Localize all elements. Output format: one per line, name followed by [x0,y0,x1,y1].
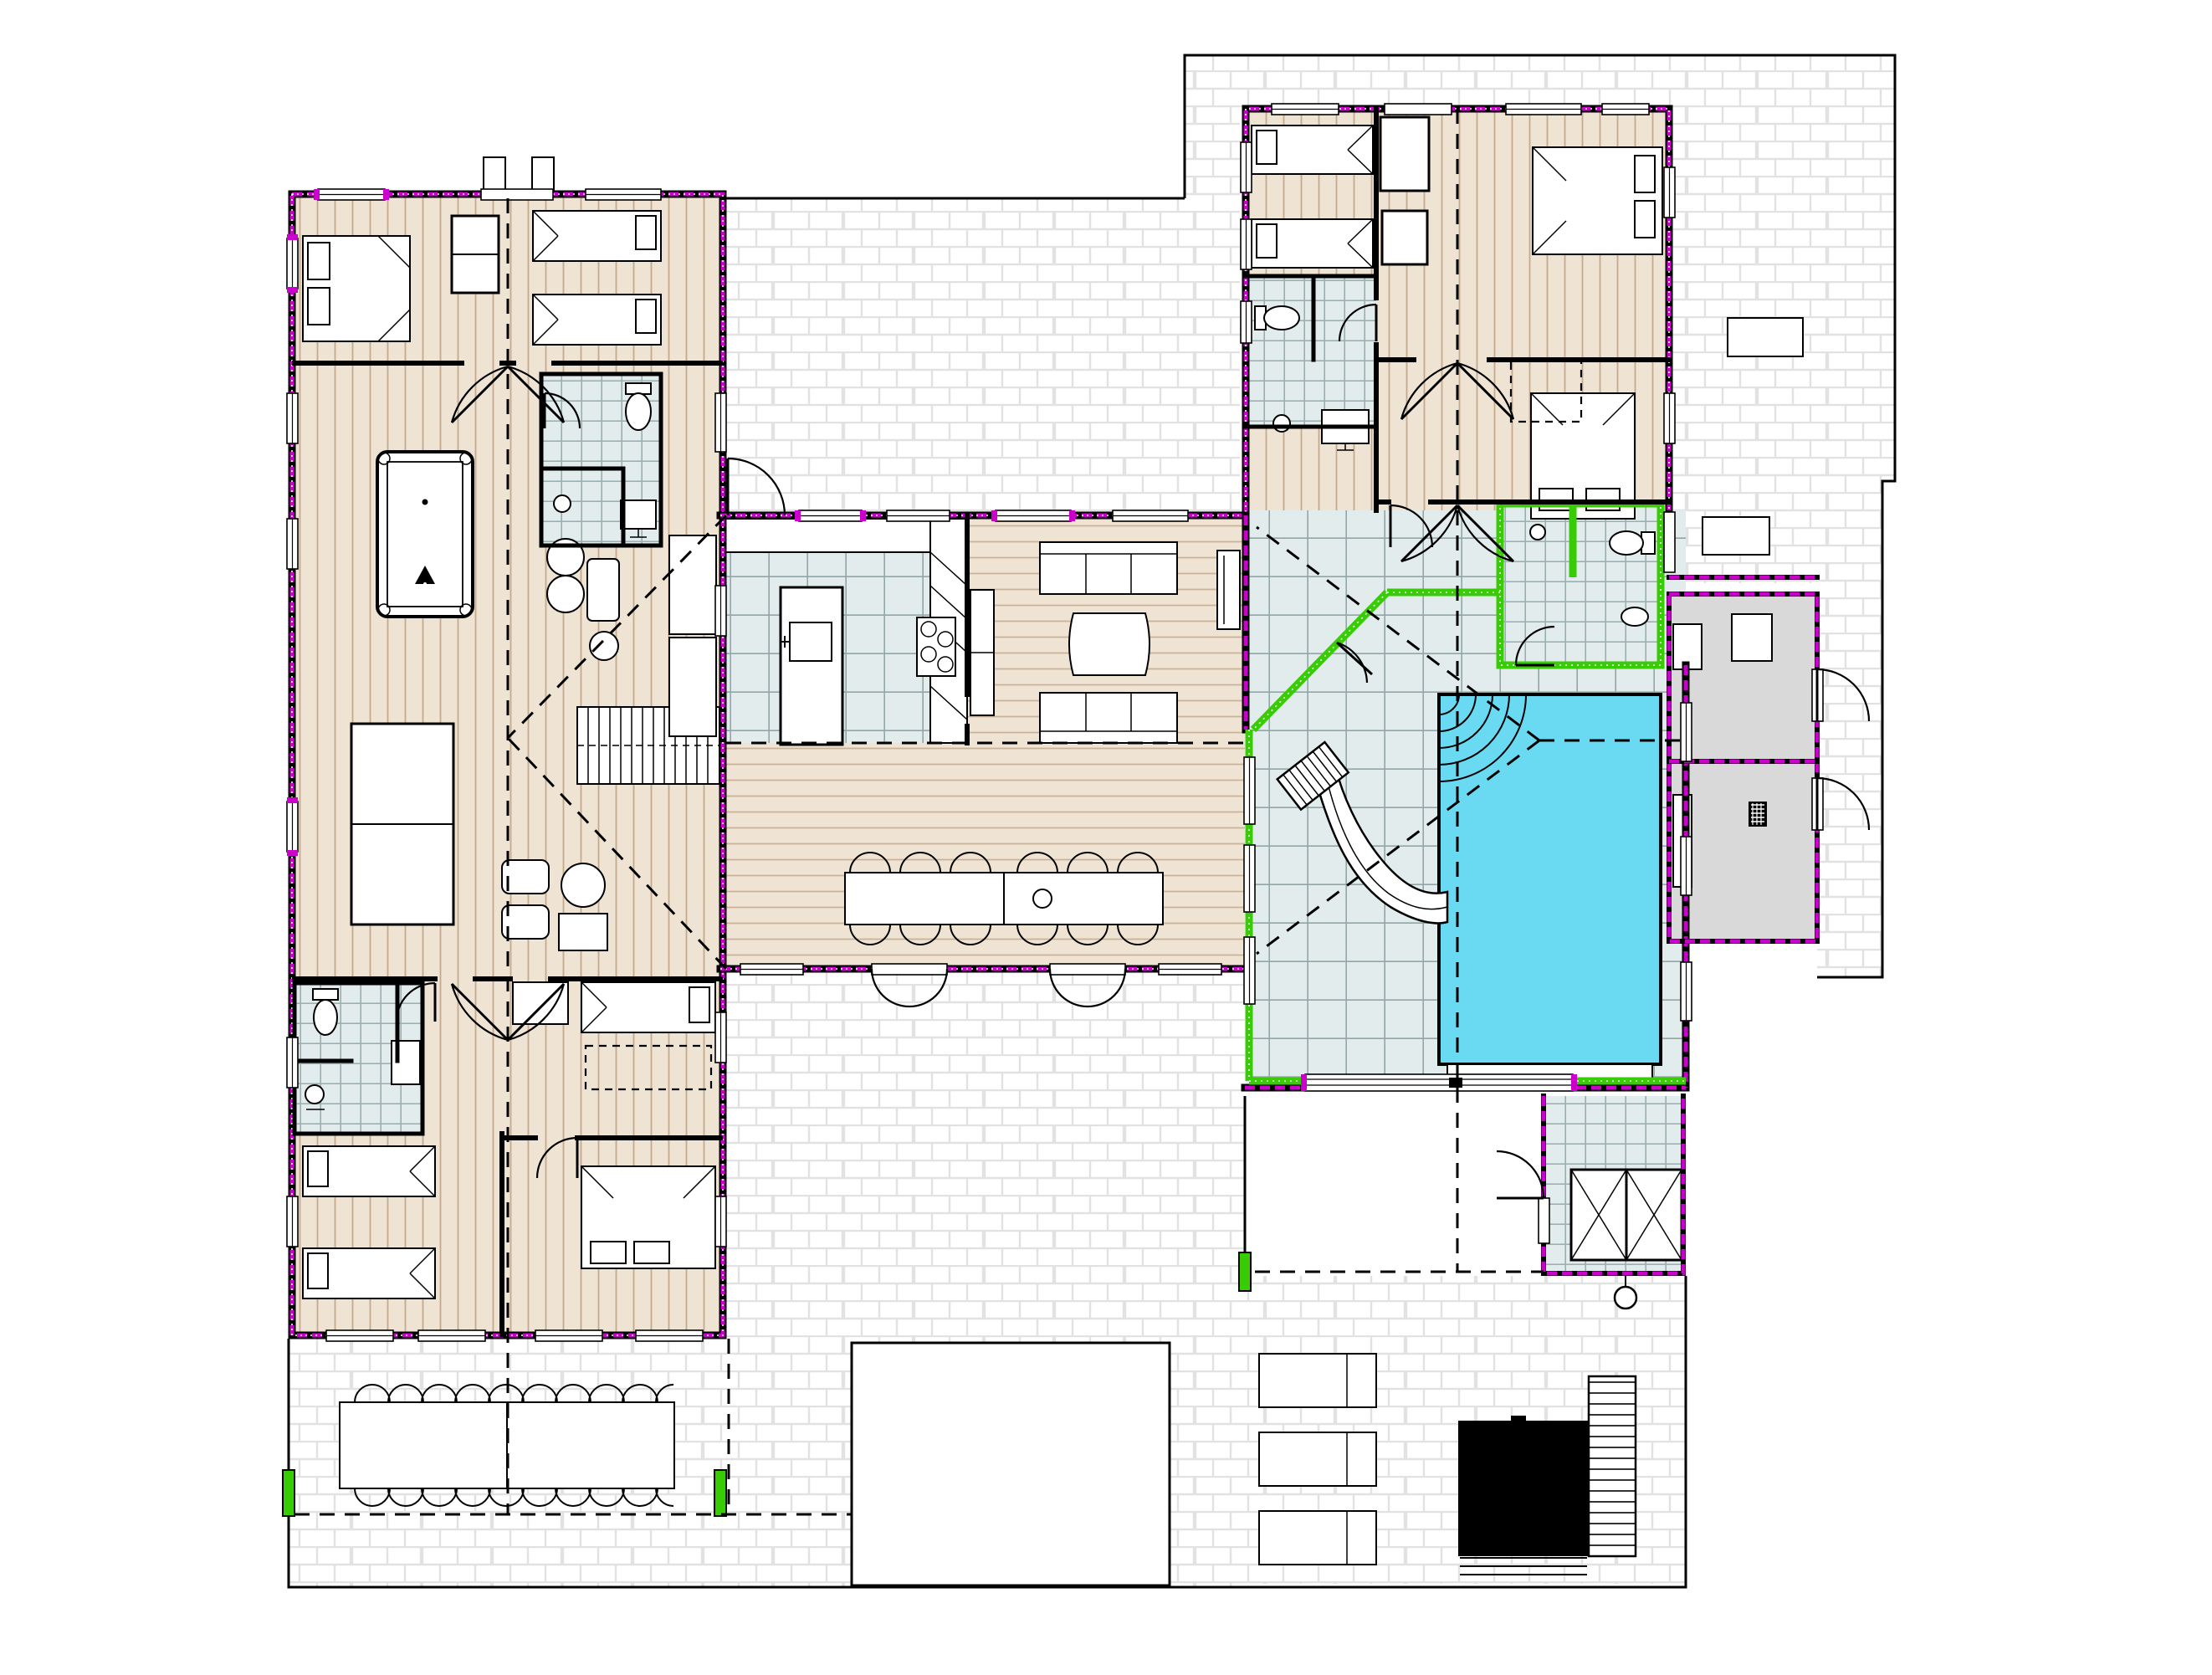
patio-table [1703,517,1769,555]
wardrobe [669,535,716,634]
sun-loungers [1259,1354,1376,1565]
kitchen-island [780,587,842,745]
hall-closet [1380,117,1429,191]
double-bed [303,236,410,341]
side-table-round [590,632,618,660]
lawn-recess [852,1343,1170,1585]
gate-marker [283,1470,294,1516]
bathroom-right-floor [1246,276,1376,427]
north-terrace-sliver [1185,109,1240,198]
double-bed-se [581,1166,715,1268]
plunge-pool-inlet [1511,1416,1526,1424]
double-bed-ne [1533,147,1662,254]
floor-drain [1749,802,1767,827]
patio-slider [1664,512,1675,572]
courtyard-terrace [720,198,1240,515]
plunge-pool [1460,1422,1587,1555]
north-terrace-table [1728,318,1803,356]
entry-door-gap [481,189,553,200]
single-bed [581,982,715,1032]
cabinet [1732,614,1772,661]
changing-door-gap [1539,1198,1549,1243]
cooktop [917,617,955,676]
pool-deck [1589,1376,1636,1556]
hall-closet [1382,211,1427,264]
dining-floor [725,743,1245,969]
pool-sliding-door [1305,1074,1573,1091]
french-door-gap [1050,964,1125,975]
gate-marker [1239,1252,1251,1291]
east-terrace-upper [1669,109,1895,481]
wardrobe [669,638,716,736]
sofa-north [1040,542,1177,594]
dining-table [845,873,1163,925]
french-door-gap [872,964,947,975]
entry-door-gap [1385,104,1452,115]
east-terrace-strip [1817,481,1882,977]
wardrobe-x [1571,1170,1682,1260]
north-terrace-strip [1185,55,1895,109]
round-chair [561,863,605,907]
indoor-pool [1439,694,1661,1064]
billiard-table [377,452,473,617]
floor-lamp [547,576,584,612]
sofa-south [1040,693,1177,743]
floor-plan-drawing [0,0,2212,1675]
tv-bench [1217,551,1240,629]
armchair [587,559,619,621]
floor-plan-canvas [0,0,2212,1675]
coffee-table [1069,613,1150,675]
gate-marker [714,1470,726,1516]
side-table [559,914,607,950]
